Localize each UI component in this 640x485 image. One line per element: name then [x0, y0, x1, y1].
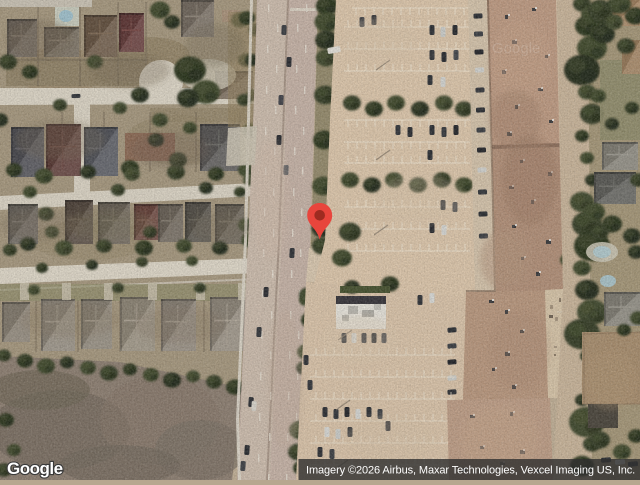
svg-text:Google: Google [7, 459, 63, 478]
svg-text:Imagery ©2026 Airbus, Maxar Te: Imagery ©2026 Airbus, Maxar Technologies… [306, 465, 635, 477]
